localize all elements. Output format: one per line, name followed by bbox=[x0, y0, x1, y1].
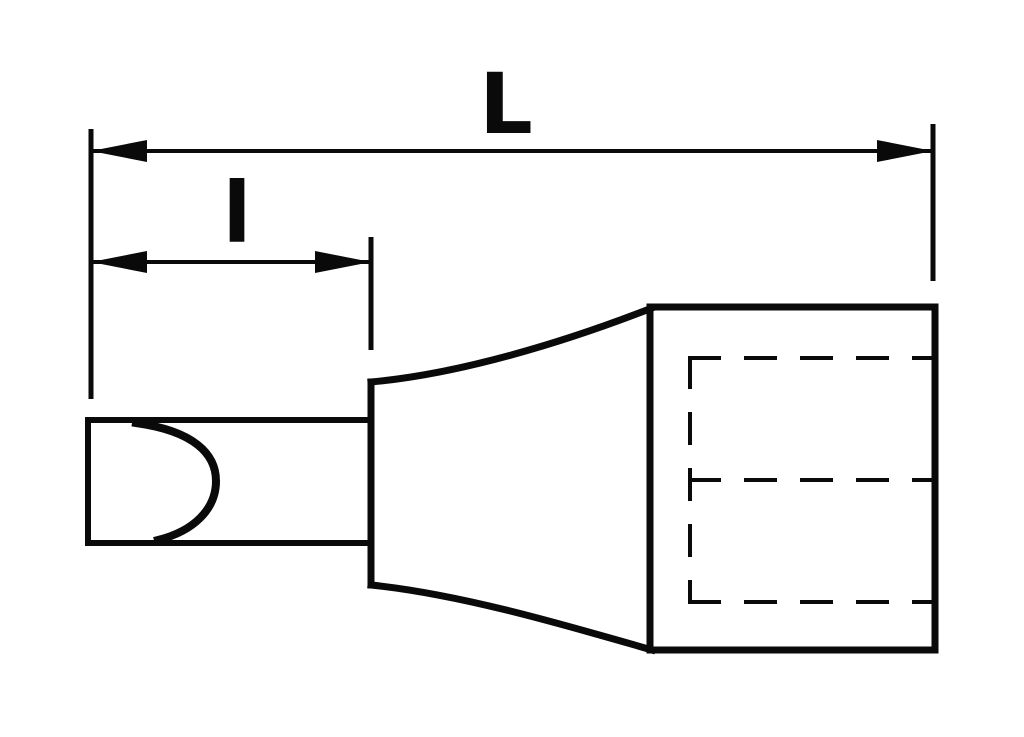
dimension-labels-group: L l bbox=[223, 55, 533, 262]
technical-drawing-canvas: L l bbox=[0, 0, 1024, 737]
arrowhead-left-icon bbox=[91, 140, 147, 162]
dimension-lines-group bbox=[91, 151, 933, 262]
bit-socket-diagram: L l bbox=[0, 0, 1024, 737]
hidden-drive-recess-group bbox=[688, 356, 933, 604]
collar-bottom-curve bbox=[371, 585, 652, 650]
arrowhead-right-icon bbox=[315, 251, 371, 273]
collar-top-curve bbox=[371, 308, 652, 382]
slotted-blade-grind-curve bbox=[136, 423, 216, 540]
arrowhead-right-icon bbox=[877, 140, 933, 162]
bit-shank-outline bbox=[88, 420, 371, 543]
arrowheads-group bbox=[91, 140, 933, 273]
arrowhead-left-icon bbox=[91, 251, 147, 273]
overall-length-label: L bbox=[479, 55, 533, 153]
bit-length-label: l bbox=[223, 164, 252, 262]
